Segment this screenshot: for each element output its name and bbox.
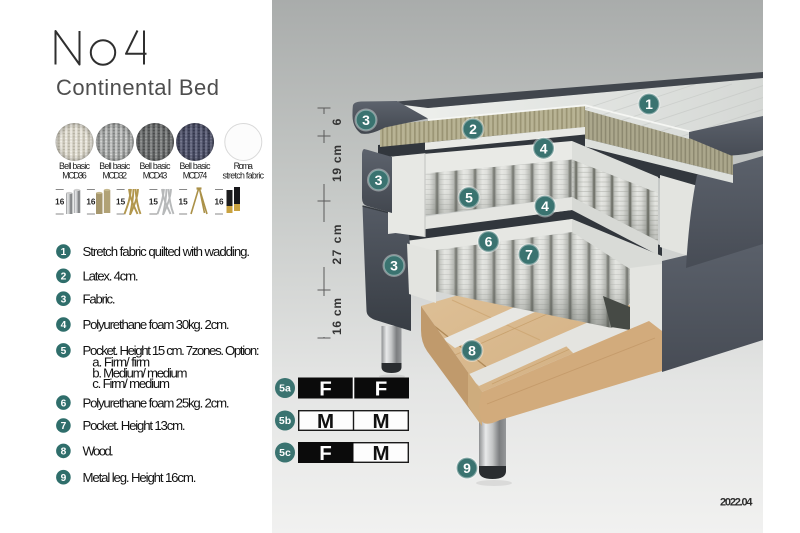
svg-text:M: M: [372, 442, 389, 465]
svg-text:Fabric.: Fabric.: [83, 291, 116, 306]
svg-text:Bell basic: Bell basic: [59, 161, 91, 171]
svg-text:4: 4: [61, 320, 67, 331]
svg-text:5a: 5a: [279, 383, 291, 395]
svg-text:1: 1: [61, 247, 67, 258]
svg-text:4: 4: [541, 198, 549, 214]
svg-text:6: 6: [61, 398, 67, 409]
svg-text:F: F: [319, 377, 332, 400]
svg-text:16: 16: [55, 197, 65, 206]
svg-text:3: 3: [362, 112, 370, 128]
svg-text:M: M: [372, 410, 389, 433]
svg-text:2: 2: [469, 121, 477, 137]
svg-text:Bell basic: Bell basic: [99, 161, 131, 171]
svg-text:15: 15: [179, 197, 189, 206]
svg-text:15: 15: [149, 197, 159, 206]
svg-text:16: 16: [214, 197, 224, 206]
svg-text:3: 3: [375, 172, 383, 188]
svg-text:7: 7: [61, 421, 67, 432]
svg-text:8: 8: [468, 343, 476, 359]
svg-text:15: 15: [116, 197, 126, 206]
svg-text:4: 4: [540, 140, 548, 156]
svg-text:stretch fabric: stretch fabric: [223, 171, 265, 181]
svg-text:MCD74: MCD74: [183, 171, 208, 181]
svg-text:3: 3: [61, 294, 67, 305]
svg-text:6: 6: [485, 234, 493, 250]
svg-text:Latex. 4cm.: Latex. 4cm.: [83, 269, 139, 284]
svg-text:Polyurethane foam 30kg. 2cm.: Polyurethane foam 30kg. 2cm.: [83, 317, 230, 332]
svg-text:Stretch fabric quilted with wa: Stretch fabric quilted with wadding.: [83, 244, 251, 259]
svg-text:5: 5: [61, 346, 67, 357]
svg-text:M: M: [317, 410, 334, 433]
svg-text:16 cm: 16 cm: [330, 298, 344, 335]
svg-text:3: 3: [390, 258, 398, 274]
svg-text:MCD32: MCD32: [103, 171, 128, 181]
svg-text:5c: 5c: [279, 447, 291, 459]
svg-text:2022.04: 2022.04: [720, 497, 753, 509]
svg-text:c. Firm/ medium: c. Firm/ medium: [92, 376, 170, 391]
svg-text:Roma: Roma: [234, 161, 253, 171]
svg-text:Metal leg. Height 16cm.: Metal leg. Height 16cm.: [83, 470, 197, 485]
svg-text:19 cm: 19 cm: [330, 145, 344, 182]
svg-text:F: F: [319, 442, 332, 465]
svg-text:9: 9: [463, 460, 471, 476]
svg-text:MCD36: MCD36: [62, 171, 87, 181]
svg-text:7: 7: [525, 247, 533, 263]
svg-text:8: 8: [61, 447, 67, 458]
svg-text:Bell basic: Bell basic: [180, 161, 212, 171]
svg-text:Pocket. Height 13cm.: Pocket. Height 13cm.: [83, 418, 186, 433]
svg-text:2: 2: [61, 272, 67, 283]
svg-text:6: 6: [330, 118, 344, 125]
svg-text:MCD43: MCD43: [143, 171, 168, 181]
svg-text:1: 1: [645, 96, 653, 112]
svg-text:5: 5: [465, 190, 473, 206]
svg-text:Continental Bed: Continental Bed: [56, 75, 219, 100]
svg-text:Wood.: Wood.: [83, 444, 114, 459]
svg-text:Bell basic: Bell basic: [140, 161, 172, 171]
svg-text:5b: 5b: [279, 415, 291, 427]
svg-text:16: 16: [86, 197, 96, 206]
svg-text:Polyurethane foam 25kg. 2cm.: Polyurethane foam 25kg. 2cm.: [83, 395, 230, 410]
svg-text:9: 9: [61, 473, 67, 484]
svg-text:F: F: [375, 377, 388, 400]
